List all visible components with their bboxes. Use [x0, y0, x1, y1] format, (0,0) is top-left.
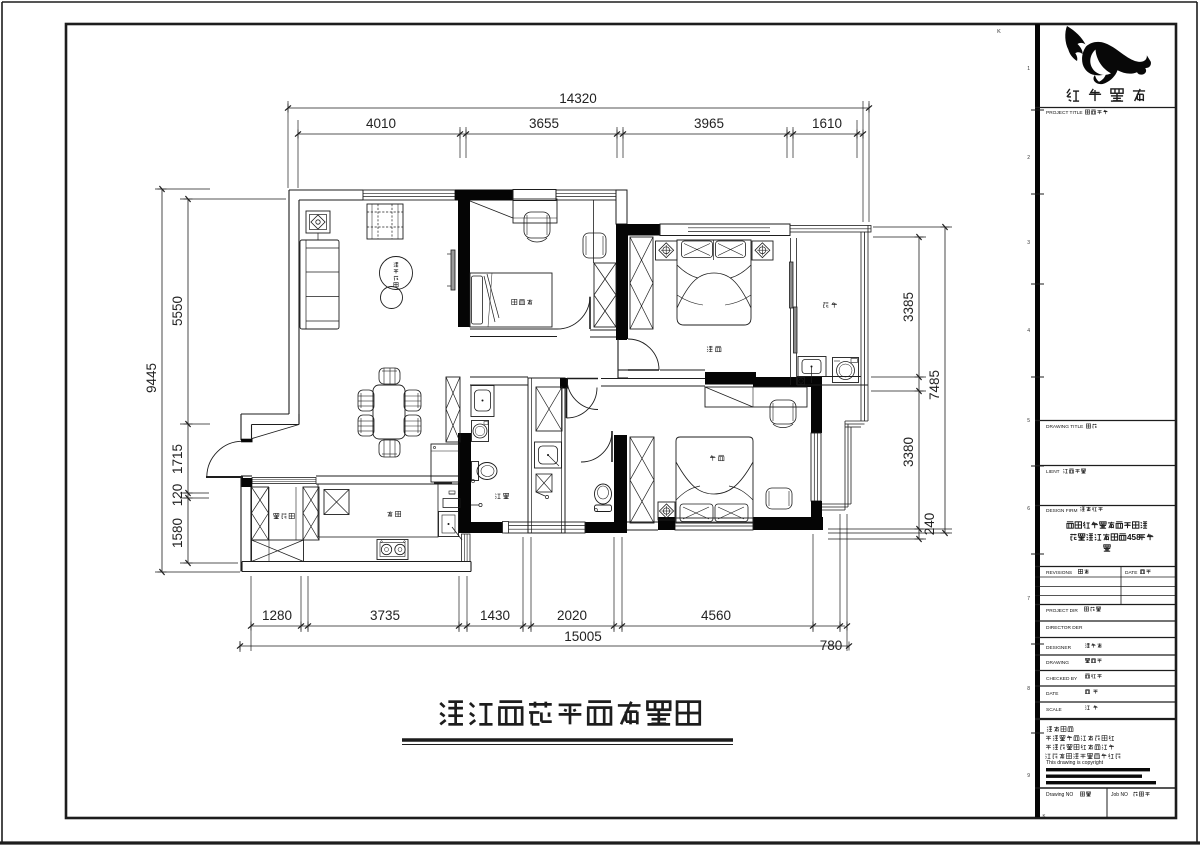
svg-text:1430: 1430	[480, 608, 510, 623]
svg-text:15005: 15005	[564, 629, 602, 644]
svg-text:DATE: DATE	[1125, 570, 1137, 576]
svg-text:3: 3	[1027, 240, 1030, 246]
svg-text:5550: 5550	[170, 296, 185, 326]
svg-text:1715: 1715	[170, 444, 185, 474]
svg-text:1280: 1280	[262, 608, 292, 623]
svg-text:SCALE: SCALE	[1046, 707, 1062, 713]
svg-text:3385: 3385	[901, 292, 916, 322]
svg-text:5: 5	[1027, 418, 1030, 424]
svg-text:4: 4	[1027, 328, 1030, 334]
svg-text:K: K	[997, 29, 1001, 35]
svg-text:120: 120	[170, 484, 185, 507]
svg-text:This drawing is copyright: This drawing is copyright	[1046, 760, 1104, 766]
svg-text:4010: 4010	[366, 116, 396, 131]
svg-text:CHECKED BY: CHECKED BY	[1046, 676, 1078, 682]
svg-text:DESIGNER: DESIGNER	[1046, 645, 1072, 651]
svg-text:4560: 4560	[701, 608, 731, 623]
svg-text:3965: 3965	[694, 116, 724, 131]
svg-text:7485: 7485	[927, 370, 942, 400]
svg-text:2020: 2020	[557, 608, 587, 623]
svg-text:PROJECT DIR: PROJECT DIR	[1046, 608, 1078, 614]
svg-text:3735: 3735	[370, 608, 400, 623]
svg-text:REVISIONS: REVISIONS	[1046, 570, 1072, 576]
svg-text:Job NO: Job NO	[1111, 792, 1128, 798]
svg-text:3655: 3655	[529, 116, 559, 131]
svg-text:14320: 14320	[559, 91, 597, 106]
svg-text:DATE: DATE	[1046, 691, 1058, 697]
svg-text:9: 9	[1027, 773, 1030, 779]
svg-text:2: 2	[1027, 155, 1030, 161]
svg-text:9445: 9445	[144, 363, 159, 393]
svg-text:DRAWING: DRAWING	[1046, 660, 1069, 666]
svg-text:Drawing NO: Drawing NO	[1046, 792, 1073, 798]
svg-text:LIENT: LIENT	[1046, 469, 1060, 475]
svg-text:240: 240	[922, 513, 937, 536]
svg-text:7: 7	[1027, 596, 1030, 602]
svg-text:3380: 3380	[901, 437, 916, 467]
svg-text:780: 780	[820, 638, 843, 653]
svg-text:DRAWING TITLE: DRAWING TITLE	[1046, 424, 1083, 430]
svg-text:6: 6	[1027, 506, 1030, 512]
svg-text:1580: 1580	[170, 518, 185, 548]
svg-text:DESIGN FIRM: DESIGN FIRM	[1046, 508, 1077, 514]
svg-text:PROJECT TITLE: PROJECT TITLE	[1046, 110, 1083, 116]
svg-text:8: 8	[1027, 686, 1030, 692]
svg-text:1610: 1610	[812, 116, 842, 131]
svg-text:DIRECTOR DER: DIRECTOR DER	[1046, 625, 1083, 631]
svg-text:1: 1	[1027, 66, 1030, 72]
